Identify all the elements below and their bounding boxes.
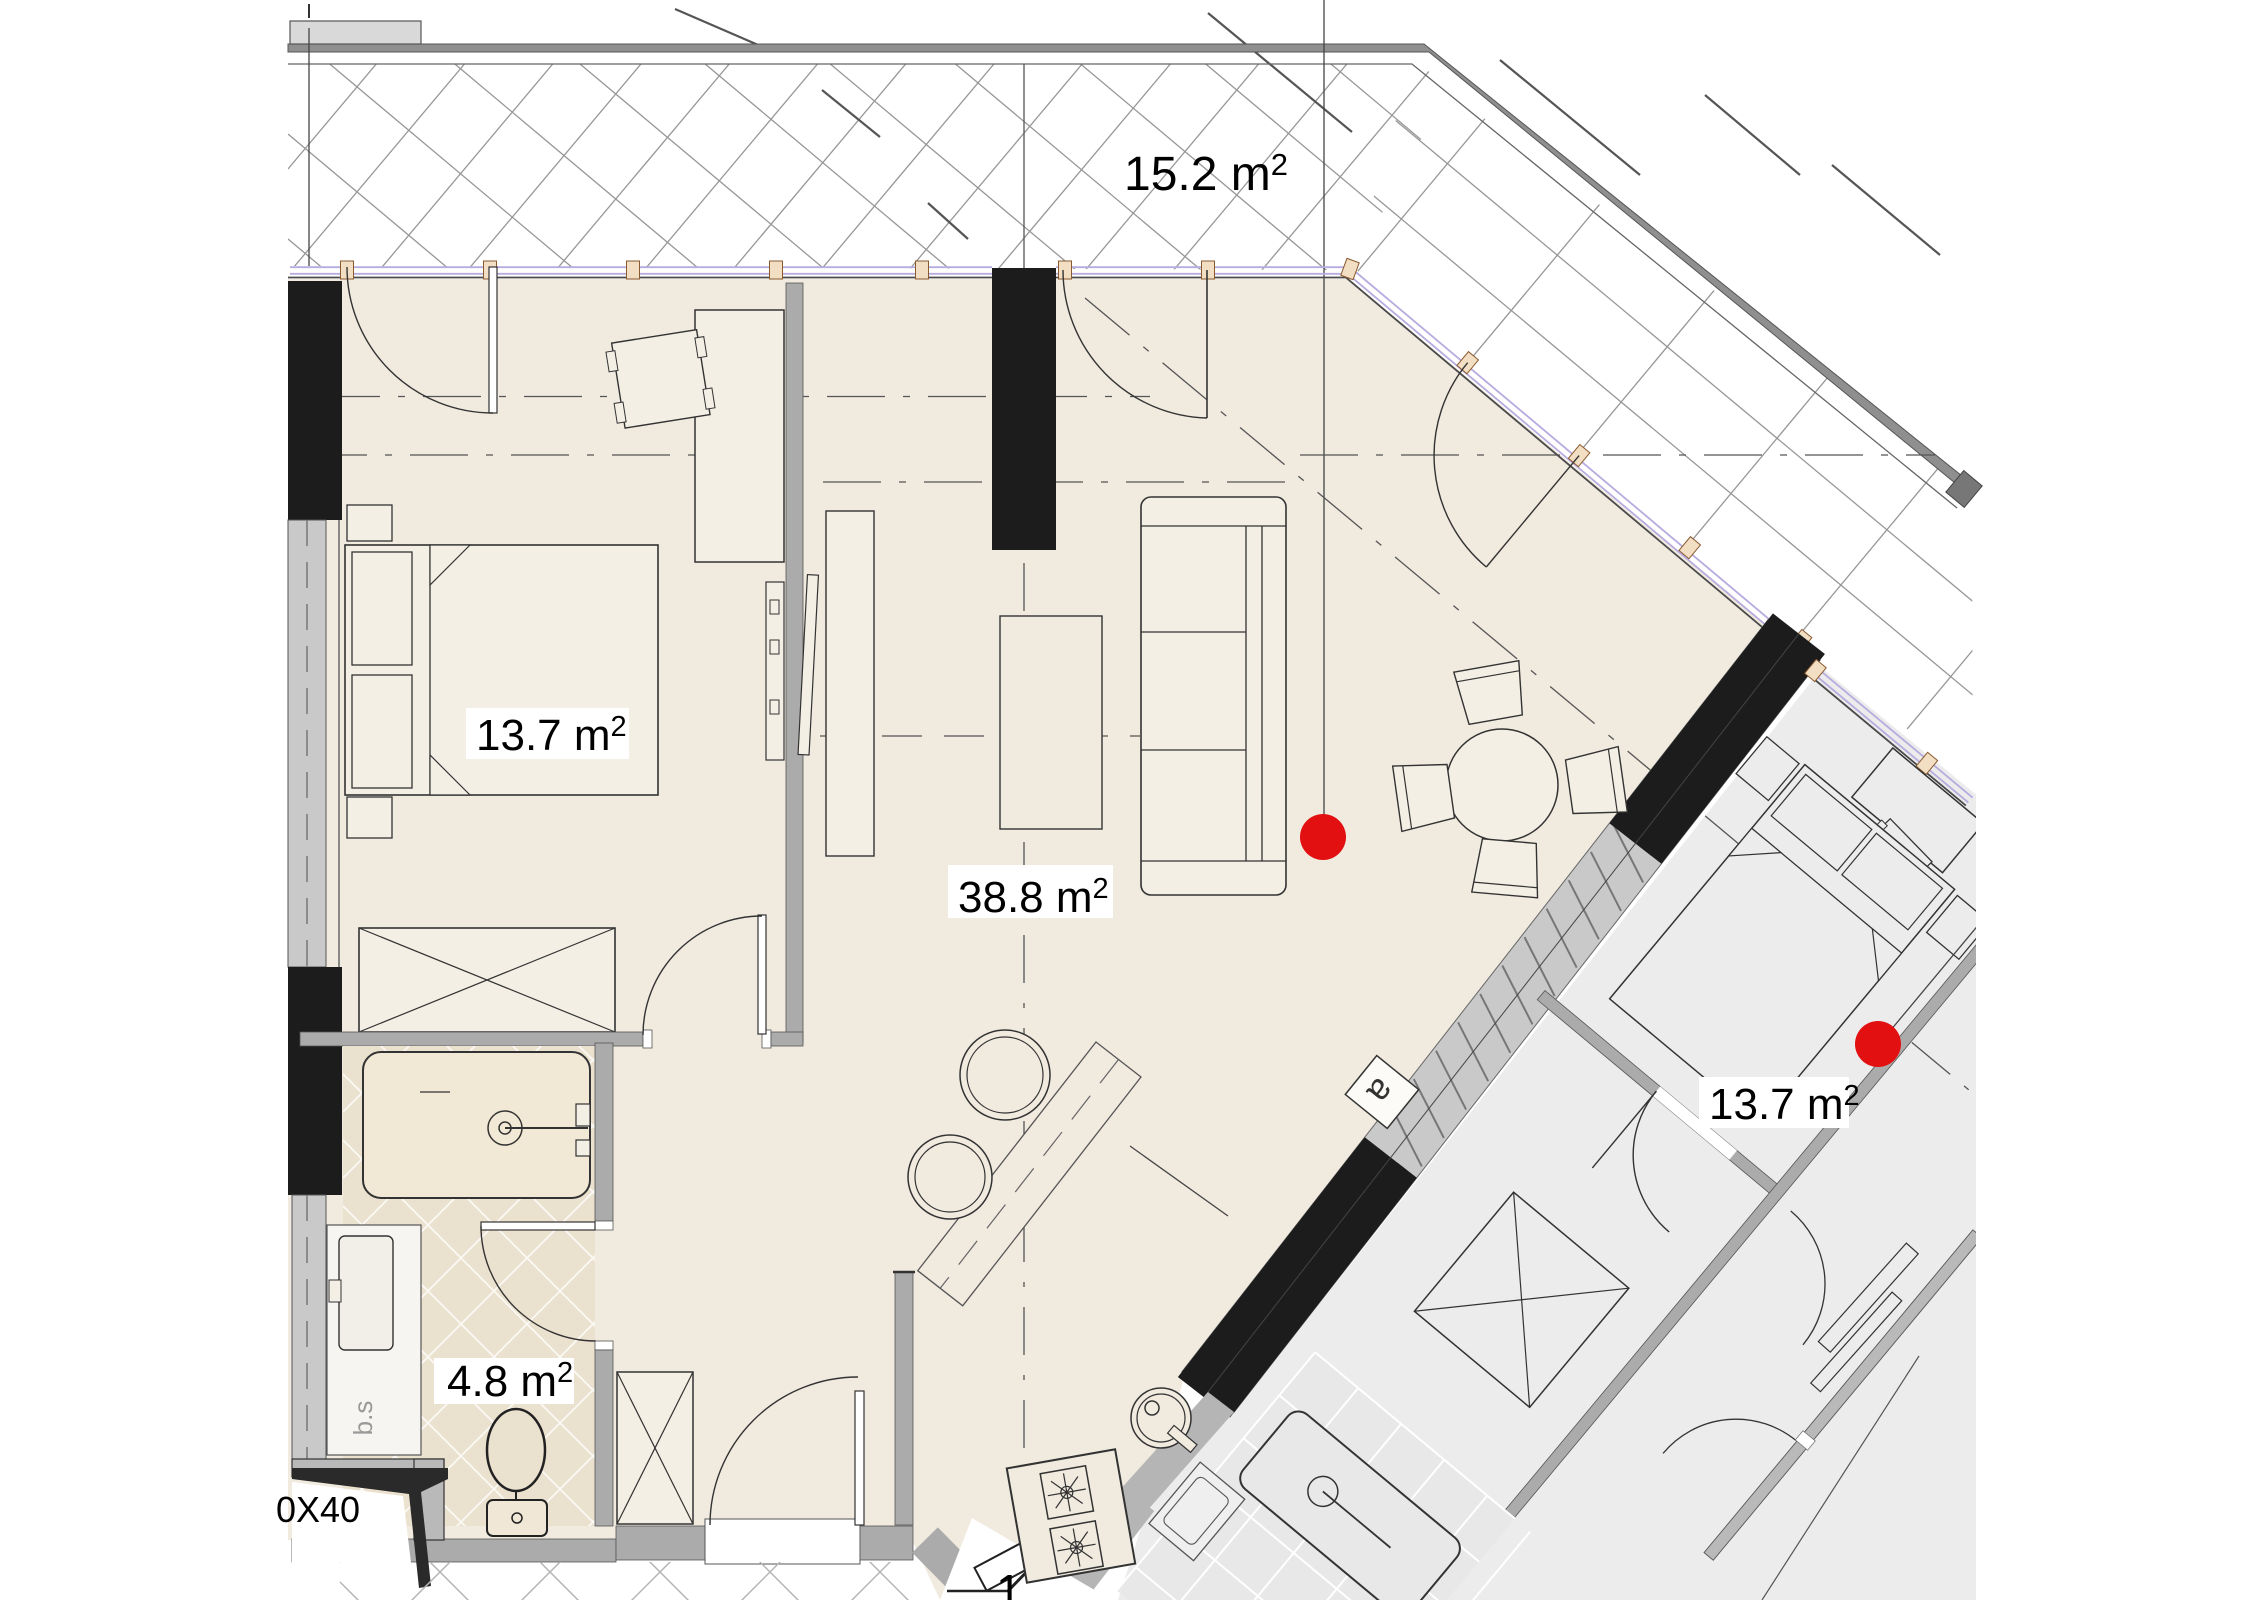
svg-text:b.s: b.s <box>348 1401 378 1436</box>
svg-text:13.7 m2: 13.7 m2 <box>1709 1080 1860 1129</box>
svg-text:4.8 m2: 4.8 m2 <box>447 1357 573 1406</box>
svg-text:0X40: 0X40 <box>276 1489 360 1530</box>
svg-text:38.8 m2: 38.8 m2 <box>958 873 1109 922</box>
svg-text:13.7 m2: 13.7 m2 <box>476 711 627 760</box>
svg-text:1: 1 <box>996 1565 1022 1600</box>
svg-text:15.2 m2: 15.2 m2 <box>1124 147 1288 201</box>
